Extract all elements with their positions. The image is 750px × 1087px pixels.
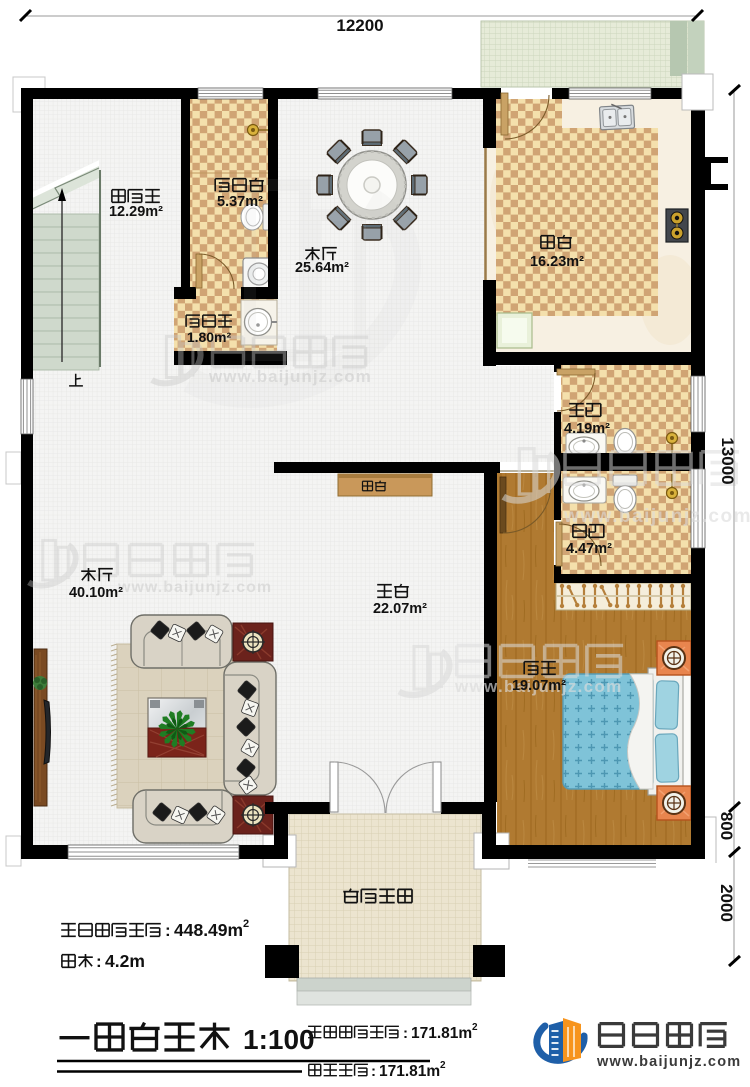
svg-text:www.baijunjz.com: www.baijunjz.com [563, 506, 750, 527]
svg-text:www.baijunjz.com: www.baijunjz.com [208, 367, 372, 386]
svg-text:16.23m²: 16.23m² [530, 254, 584, 270]
svg-text:1:100: 1:100 [243, 1024, 315, 1055]
svg-text:800: 800 [717, 812, 736, 840]
svg-text:www.baijunjz.com: www.baijunjz.com [596, 1054, 741, 1070]
svg-text:1.80m²: 1.80m² [187, 329, 232, 345]
svg-text:40.10m²: 40.10m² [69, 585, 123, 601]
svg-text:22.07m²: 22.07m² [373, 601, 427, 617]
svg-text:4.47m²: 4.47m² [566, 541, 612, 557]
svg-text:12200: 12200 [336, 16, 383, 35]
svg-text:5.37m²: 5.37m² [217, 194, 263, 210]
svg-text:2000: 2000 [717, 884, 736, 922]
svg-text:2: 2 [440, 1060, 446, 1071]
svg-text:13000: 13000 [718, 437, 737, 484]
svg-text::: : [165, 921, 171, 940]
svg-text:171.81m: 171.81m [411, 1025, 472, 1042]
svg-text:12.29m²: 12.29m² [109, 204, 163, 220]
svg-text:www.baijunjz.com: www.baijunjz.com [117, 579, 272, 596]
svg-text:4.19m²: 4.19m² [564, 421, 610, 437]
svg-text:4.2m: 4.2m [105, 951, 145, 971]
svg-text:25.64m²: 25.64m² [295, 260, 349, 276]
svg-text:2: 2 [243, 918, 249, 930]
svg-text:171.81m: 171.81m [379, 1063, 440, 1080]
svg-text::: : [371, 1063, 376, 1080]
svg-text::: : [96, 952, 102, 971]
svg-text::: : [403, 1025, 408, 1042]
svg-text:448.49m: 448.49m [174, 920, 243, 940]
svg-text:19.07m²: 19.07m² [512, 678, 566, 694]
svg-text:2: 2 [472, 1022, 478, 1033]
